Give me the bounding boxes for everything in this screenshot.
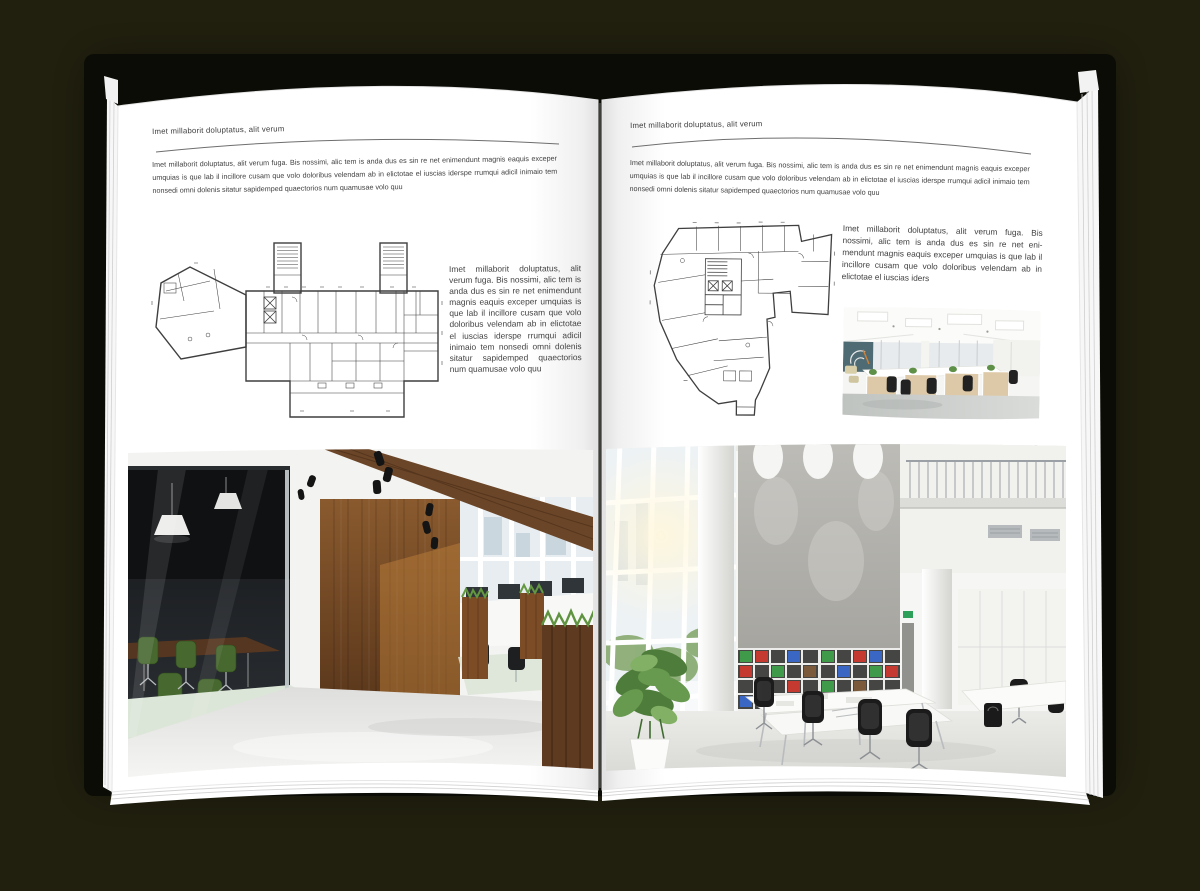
booklet-mockup-scene: Imet millaborit doluptatus, alit verum I… bbox=[0, 0, 1200, 891]
left-page-photo-loft-office bbox=[128, 447, 593, 778]
right-sidebar-text: Imet millaborit doluptatus, alit verum f… bbox=[842, 222, 1043, 287]
left-floor-plan-drawing bbox=[150, 231, 448, 419]
right-page-photo-atrium-office bbox=[606, 441, 1066, 779]
right-page-small-photo-office bbox=[842, 306, 1041, 423]
right-intro-paragraph: Imet millaborit doluptatus, alit verum f… bbox=[629, 157, 1030, 202]
right-floor-plan-drawing bbox=[647, 220, 845, 418]
left-intro-paragraph: Imet millaborit doluptatus, alit verum f… bbox=[152, 153, 558, 198]
right-page-header: Imet millaborit doluptatus, alit verum bbox=[630, 119, 763, 130]
left-sidebar-text: Imet millaborit doluptatus, alit verum f… bbox=[449, 263, 582, 375]
